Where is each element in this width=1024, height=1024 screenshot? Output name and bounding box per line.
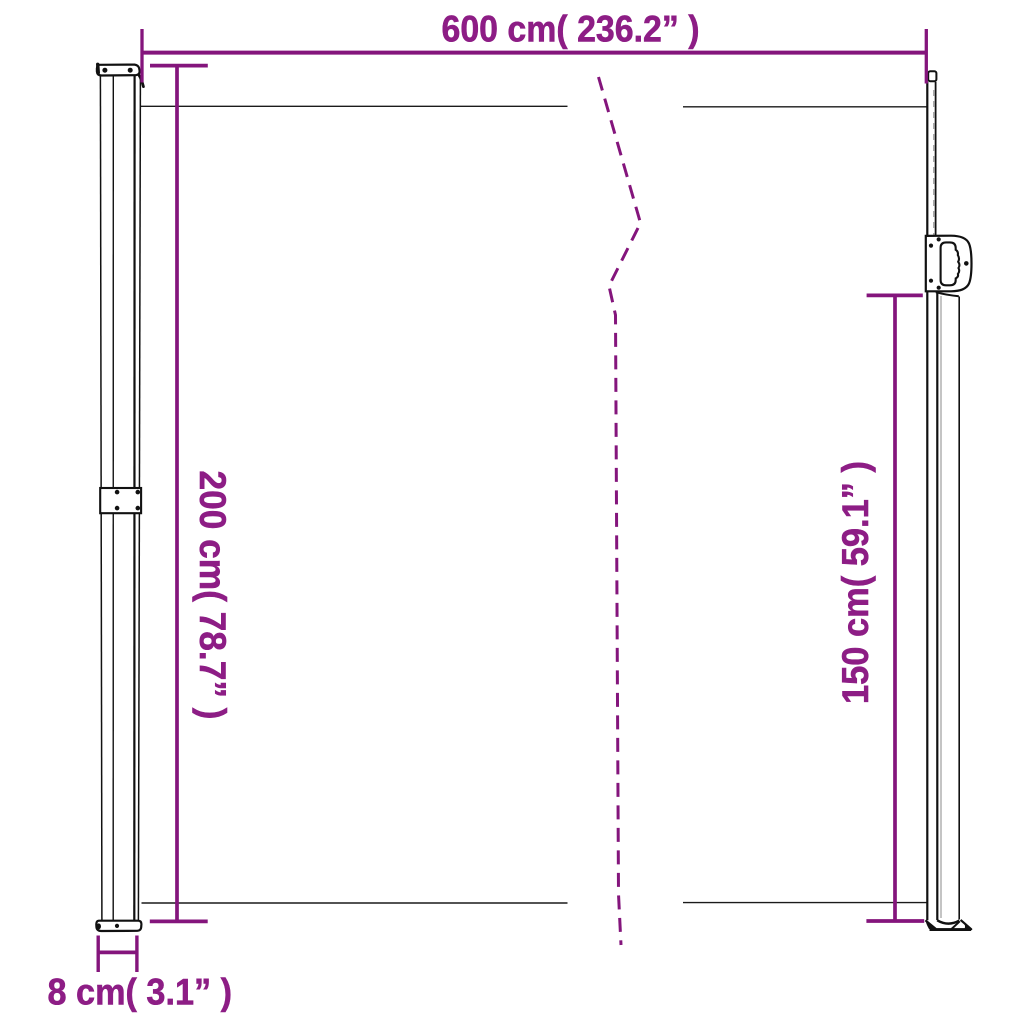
svg-text:150 cm( 59.1” ): 150 cm( 59.1” ) [834,461,876,704]
svg-text:8 cm( 3.1” ): 8 cm( 3.1” ) [48,971,233,1013]
svg-text:200 cm( 78.7” ): 200 cm( 78.7” ) [192,471,234,720]
svg-text:600 cm( 236.2” ): 600 cm( 236.2” ) [442,7,700,49]
